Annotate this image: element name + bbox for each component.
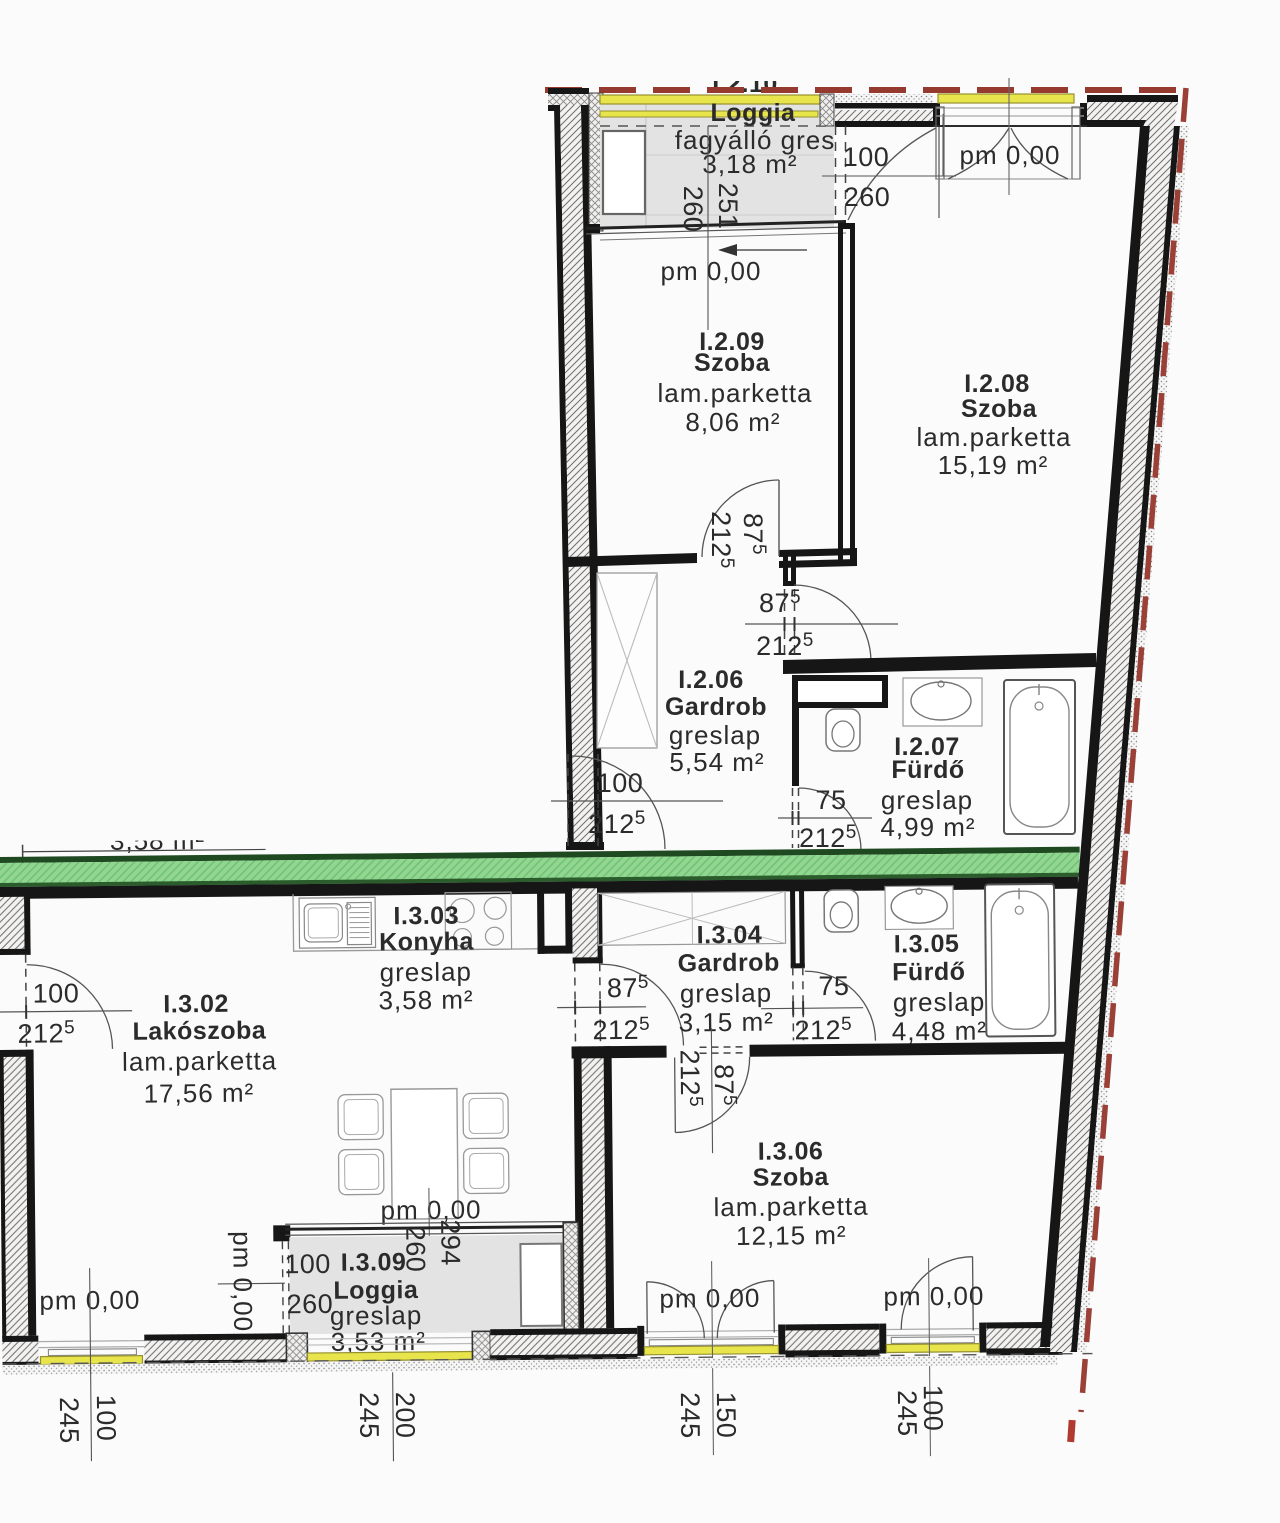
- svg-text:245: 245: [54, 1397, 84, 1444]
- svg-text:greslap: greslap: [881, 785, 973, 815]
- svg-text:pm 0,00: pm 0,00: [227, 1231, 258, 1332]
- svg-text:lam.parketta: lam.parketta: [122, 1045, 277, 1076]
- svg-text:greslap: greslap: [380, 956, 473, 987]
- svg-text:100: 100: [91, 1395, 121, 1442]
- svg-text:I.3.03: I.3.03: [393, 902, 459, 931]
- svg-text:I.3.09: I.3.09: [341, 1248, 407, 1277]
- svg-text:100: 100: [597, 768, 644, 798]
- svg-text:Fürdő: Fürdő: [891, 756, 964, 784]
- svg-text:greslap: greslap: [669, 720, 761, 750]
- svg-text:Gardrob: Gardrob: [665, 693, 767, 721]
- svg-text:260: 260: [678, 186, 708, 233]
- svg-text:Loggia: Loggia: [711, 99, 797, 127]
- svg-text:Lakószoba: Lakószoba: [132, 1016, 267, 1045]
- svg-text:lam.parketta: lam.parketta: [713, 1191, 868, 1222]
- svg-text:4,48 m²: 4,48 m²: [892, 1016, 987, 1047]
- svg-text:245: 245: [675, 1392, 705, 1439]
- svg-text:greslap: greslap: [680, 978, 773, 1009]
- svg-text:15,19 m²: 15,19 m²: [938, 450, 1049, 480]
- svg-text:Szoba: Szoba: [753, 1163, 830, 1192]
- svg-text:I.3.04: I.3.04: [697, 921, 763, 950]
- svg-text:100: 100: [33, 978, 80, 1008]
- svg-text:245: 245: [892, 1390, 922, 1437]
- svg-text:75: 75: [818, 971, 849, 1001]
- svg-text:12,15 m²: 12,15 m²: [736, 1220, 847, 1251]
- svg-text:Konyha: Konyha: [379, 927, 475, 956]
- svg-text:I.2.06: I.2.06: [678, 666, 744, 694]
- svg-text:251: 251: [713, 183, 743, 230]
- svg-text:3,58 m²: 3,58 m²: [378, 984, 473, 1015]
- svg-text:3,15 m²: 3,15 m²: [679, 1007, 774, 1038]
- svg-text:I.2.08: I.2.08: [964, 370, 1030, 398]
- svg-text:200: 200: [390, 1392, 420, 1439]
- svg-text:100: 100: [843, 142, 890, 172]
- svg-text:pm 0,00: pm 0,00: [960, 140, 1061, 170]
- svg-text:Szoba: Szoba: [694, 349, 771, 377]
- svg-text:I.3.06: I.3.06: [758, 1137, 824, 1166]
- svg-text:Gardrob: Gardrob: [678, 949, 780, 978]
- svg-text:8,06 m²: 8,06 m²: [685, 407, 780, 437]
- svg-text:100: 100: [284, 1249, 331, 1279]
- svg-text:I.3.02: I.3.02: [163, 990, 229, 1019]
- svg-text:294: 294: [435, 1219, 465, 1266]
- svg-text:17,56 m²: 17,56 m²: [143, 1078, 254, 1109]
- svg-text:75: 75: [815, 785, 846, 815]
- svg-text:260: 260: [287, 1289, 334, 1319]
- svg-text:greslap: greslap: [893, 987, 986, 1018]
- svg-text:245: 245: [354, 1392, 384, 1439]
- svg-text:Fürdő: Fürdő: [892, 958, 966, 987]
- svg-text:pm 0,00: pm 0,00: [659, 1283, 760, 1314]
- svg-text:260: 260: [844, 182, 891, 212]
- svg-text:4,99 m²: 4,99 m²: [880, 812, 975, 842]
- svg-text:Szoba: Szoba: [961, 395, 1038, 423]
- svg-text:3,18 m²: 3,18 m²: [702, 149, 797, 179]
- svg-text:150: 150: [711, 1392, 741, 1439]
- svg-text:pm 0,00: pm 0,00: [661, 256, 762, 286]
- svg-text:pm 0,00: pm 0,00: [883, 1281, 984, 1312]
- svg-text:I.3.05: I.3.05: [894, 930, 960, 959]
- svg-text:5,54 m²: 5,54 m²: [669, 747, 764, 777]
- svg-text:lam.parketta: lam.parketta: [657, 378, 812, 408]
- svg-text:pm 0,00: pm 0,00: [380, 1194, 481, 1225]
- svg-text:lam.parketta: lam.parketta: [916, 422, 1071, 452]
